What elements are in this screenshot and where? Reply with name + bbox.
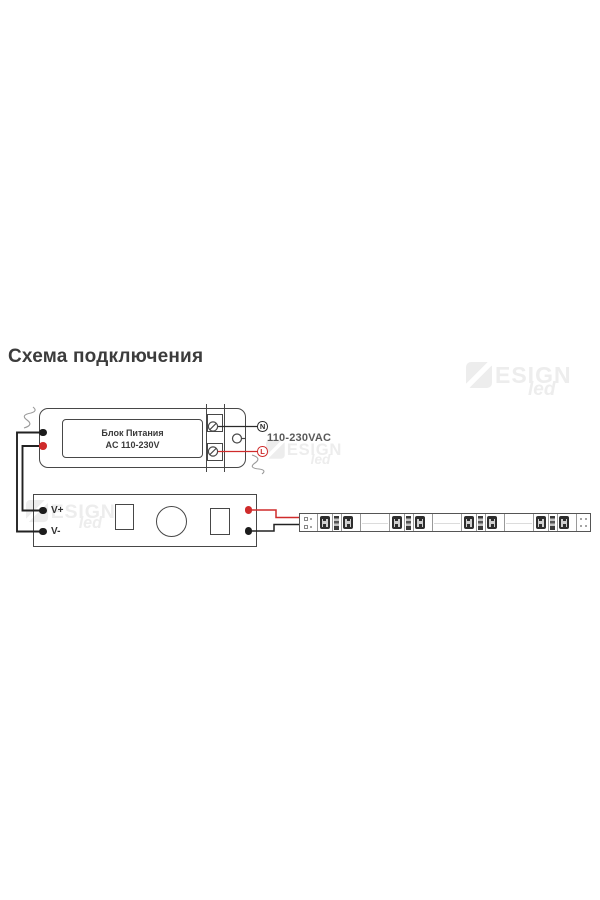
solder-pad-dot	[585, 525, 587, 527]
cut-line-zone	[505, 514, 533, 531]
power-supply-label: Блок Питания AC 110-230V	[62, 419, 203, 458]
controller-vplus-terminal	[39, 507, 47, 515]
led-chip-window	[417, 519, 423, 527]
led-segment	[317, 514, 361, 531]
led-chip	[557, 514, 571, 531]
page-title: Схема подключения	[8, 346, 203, 368]
resistor-body	[478, 516, 483, 530]
led-chip-window	[322, 519, 328, 527]
led-contact	[347, 524, 350, 527]
led-contact	[539, 519, 542, 522]
break-squiggle	[24, 407, 35, 428]
led-chip	[318, 514, 332, 531]
led-chip-body	[343, 516, 353, 529]
psu-dc-negative-terminal	[39, 429, 47, 437]
power-supply-name: Блок Питания	[101, 427, 163, 439]
led-contact	[419, 519, 422, 522]
connection-diagram: ESIGN led ESIGN led ESIGN led Схема подк…	[0, 0, 600, 900]
led-chip-body	[487, 516, 497, 529]
led-strip-body	[300, 514, 590, 531]
led-chip-window	[345, 519, 351, 527]
led-segment	[389, 514, 433, 531]
led-contact	[347, 519, 350, 522]
vplus-label: V+	[51, 505, 64, 517]
led-chip	[413, 514, 427, 531]
led-chip-body	[559, 516, 569, 529]
led-contact	[467, 519, 470, 522]
wire-strip-negative	[252, 525, 299, 532]
controller-component-circle	[156, 506, 187, 537]
strip-end-pads	[577, 514, 590, 531]
solder-pad	[304, 517, 308, 521]
brand-watermark: ESIGN led	[466, 362, 572, 388]
resistor	[548, 514, 557, 531]
brand-watermark-script: led	[311, 452, 331, 468]
resistor-body	[550, 516, 555, 530]
line-terminal: L	[257, 446, 268, 457]
led-contact	[563, 524, 566, 527]
led-chip-body	[392, 516, 402, 529]
brand-watermark-script: led	[528, 379, 555, 401]
neutral-terminal: N	[257, 421, 268, 432]
mains-voltage-label: 110-230VAC	[267, 432, 331, 444]
controller-component-square	[210, 508, 230, 535]
led-contact	[491, 524, 494, 527]
solder-pad-dot	[310, 518, 312, 520]
controller-component-square	[115, 504, 134, 531]
resistor	[476, 514, 485, 531]
wire-strip-positive	[252, 510, 299, 518]
led-contact	[563, 519, 566, 522]
led-chip-window	[538, 519, 544, 527]
cut-line-zone	[361, 514, 389, 531]
led-segment	[533, 514, 577, 531]
led-chip	[341, 514, 355, 531]
screw-terminal-housing	[207, 414, 224, 433]
solder-pad-dot	[580, 518, 582, 520]
led-contact	[395, 524, 398, 527]
led-strip	[299, 513, 591, 532]
terminal-column-line	[224, 404, 225, 472]
led-segment	[461, 514, 505, 531]
resistor-body	[406, 516, 411, 530]
led-chip-window	[466, 519, 472, 527]
resistor	[332, 514, 341, 531]
resistor-body	[334, 516, 339, 530]
break-squiggle	[252, 455, 264, 474]
led-contact	[323, 519, 326, 522]
screw-terminal-housing	[207, 443, 224, 462]
led-chip	[485, 514, 499, 531]
psu-dc-positive-terminal	[39, 442, 47, 450]
led-chip-body	[536, 516, 546, 529]
led-contact	[491, 519, 494, 522]
led-contact	[467, 524, 470, 527]
led-contact	[395, 519, 398, 522]
led-contact	[419, 524, 422, 527]
solder-pad	[304, 525, 308, 529]
led-chip-body	[320, 516, 330, 529]
resistor	[404, 514, 413, 531]
led-chip-body	[464, 516, 474, 529]
controller-vminus-terminal	[39, 528, 47, 536]
controller-output-positive-terminal	[245, 506, 253, 514]
led-chip-body	[415, 516, 425, 529]
led-chip	[390, 514, 404, 531]
led-chip-window	[394, 519, 400, 527]
led-chip-window	[489, 519, 495, 527]
brand-logo-icon	[466, 362, 492, 388]
vminus-label: V-	[51, 526, 60, 538]
led-contact	[323, 524, 326, 527]
solder-pad-dot	[580, 525, 582, 527]
solder-pad-dot	[585, 518, 587, 520]
controller-output-negative-terminal	[245, 527, 253, 535]
led-chip	[462, 514, 476, 531]
cut-line-zone	[433, 514, 461, 531]
strip-input-pads	[300, 514, 317, 531]
power-supply-voltage: AC 110-230V	[105, 439, 159, 451]
led-contact	[539, 524, 542, 527]
led-chip-window	[561, 519, 567, 527]
solder-pad-dot	[310, 526, 312, 528]
led-chip	[534, 514, 548, 531]
